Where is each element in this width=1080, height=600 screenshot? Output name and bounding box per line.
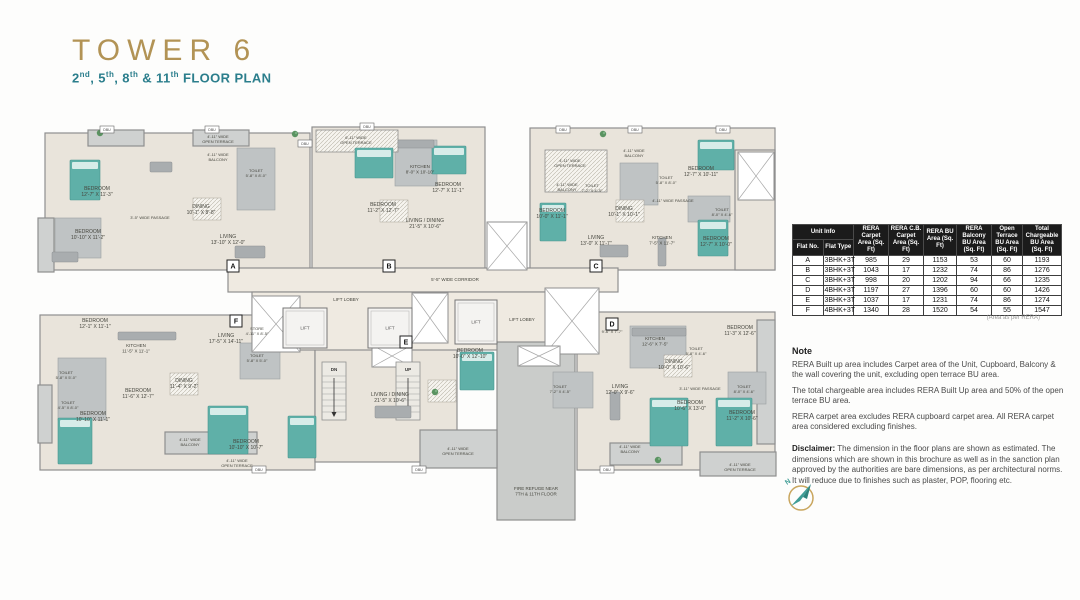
plan-bed-pillow <box>700 222 726 229</box>
plan-db-label: DBU <box>255 468 263 472</box>
plan-db-label: DBU <box>208 128 216 132</box>
disclaimer-paragraph: Disclaimer: The dimension in the floor p… <box>792 444 1064 486</box>
plan-bed-pillow <box>210 408 246 415</box>
table-cell: D <box>793 285 824 295</box>
plan-room-label: 4'-11" WIDEBALCONY <box>623 148 645 158</box>
table-cell: 998 <box>854 275 889 285</box>
plan-room-label: BEDROOM10'-0" X 12'-10" <box>453 348 488 360</box>
plan-furniture <box>150 162 172 172</box>
table-cell: 1232 <box>924 265 957 275</box>
table-cell: B <box>793 265 824 275</box>
plan-db-label: DBU <box>103 128 111 132</box>
table-cell: 17 <box>889 265 924 275</box>
table-cell: 1153 <box>924 255 957 265</box>
plan-bed-pillow <box>700 142 732 149</box>
plan-db-label: DBU <box>301 142 309 146</box>
plan-db-label: DBU <box>603 468 611 472</box>
table-cell: 28 <box>889 305 924 315</box>
table-cell: 1274 <box>1023 295 1062 305</box>
table-cell: 60 <box>992 285 1023 295</box>
plan-furniture <box>375 406 411 418</box>
plan-furniture <box>118 332 176 340</box>
plan-unit-badge-letter: C <box>593 264 598 271</box>
unit-table-header: Unit InfoRERA Carpet Area (Sq. Ft)RERA C… <box>793 225 1062 256</box>
plan-db-label: DBU <box>363 125 371 129</box>
table-column-header: RERA Balcony BU Area (Sq. Ft) <box>957 225 992 256</box>
table-column-header: Open Terrace BU Area (Sq. Ft) <box>992 225 1023 256</box>
plan-plant-leaf <box>295 132 297 134</box>
table-cell: 3BHK+3T <box>823 295 854 305</box>
table-caption: (Area as per RERA) <box>792 315 1040 321</box>
plan-plant <box>292 131 298 137</box>
note-paragraph: The total chargeable area includes RERA … <box>792 386 1064 407</box>
plan-room-label: BEDROOM10'-0" X 11'-1" <box>536 208 567 220</box>
plan-plant-leaf <box>435 390 437 392</box>
table-cell: 1231 <box>924 295 957 305</box>
table-cell: 1193 <box>1023 255 1062 265</box>
table-row: C3BHK+3T99820120294661235 <box>793 275 1062 285</box>
plan-room-label: 4'-11" WIDEBALCONY <box>619 444 641 454</box>
table-cell: 54 <box>957 305 992 315</box>
table-cell: 1340 <box>854 305 889 315</box>
table-row: A3BHK+3T98529115353601193 <box>793 255 1062 265</box>
plan-room-label: BEDROOM11'-3" X 12'-6" <box>724 325 755 337</box>
plan-tile-room <box>237 148 275 210</box>
table-cell: 17 <box>889 295 924 305</box>
table-cell: E <box>793 295 824 305</box>
table-cell: 4BHK+3T <box>823 285 854 295</box>
note-heading: Note <box>792 346 1064 356</box>
table-column-header: RERA C.B. Carpet Area (Sq. Ft) <box>889 225 924 256</box>
table-cell: 94 <box>957 275 992 285</box>
plan-room-label: BEDROOM10'-10" X 11'-2" <box>71 229 105 241</box>
note-paragraph: RERA Built up area includes Carpet area … <box>792 360 1064 381</box>
table-cell: 66 <box>992 275 1023 285</box>
table-cell: 74 <box>957 265 992 275</box>
plan-room-label: 3'-5" WIDE PASSAGE <box>130 215 170 220</box>
plan-furniture <box>398 140 434 148</box>
plan-room-label: 4'-11" WIDE PASSAGE <box>652 198 694 203</box>
plan-block <box>38 218 54 272</box>
plan-furniture <box>52 252 78 262</box>
plan-furniture <box>235 246 265 258</box>
north-compass-icon: N <box>773 468 829 524</box>
table-cell: 1276 <box>1023 265 1062 275</box>
plan-room-label: KITCHEN7'-5" X 11'-7" <box>649 235 675 246</box>
table-cell: 29 <box>889 255 924 265</box>
plan-room-label: 9'-6" X 7'-7" <box>602 329 623 334</box>
plan-room-label: 4'-11" WIDEBALCONY <box>179 437 201 447</box>
plan-room-label: BEDROOM12'-7" X 11'-3" <box>81 186 112 198</box>
table-cell: A <box>793 255 824 265</box>
plan-stair-direction: DN <box>331 367 338 372</box>
plan-room-label: BEDROOM12'-7" X 10'-11" <box>684 166 718 178</box>
table-cell: 53 <box>957 255 992 265</box>
table-cell: 1043 <box>854 265 889 275</box>
table-cell: 55 <box>992 305 1023 315</box>
table-cell: 4BHK+3T <box>823 305 854 315</box>
plan-room-label: BEDROOM11'-6" X 12'-7" <box>122 388 153 400</box>
table-cell: 1396 <box>924 285 957 295</box>
plan-bed-pillow <box>718 400 750 407</box>
table-cell: 1037 <box>854 295 889 305</box>
plan-room-label: KITCHEN12'-6" X 7'-5" <box>642 336 668 347</box>
table-cell: 60 <box>957 285 992 295</box>
notes-section: Note RERA Built up area includes Carpet … <box>792 346 1064 491</box>
plan-plant-leaf <box>658 458 660 460</box>
plan-bed-pillow <box>357 150 391 157</box>
plan-room-label: BEDROOM11'-2" X 12'-7" <box>367 202 398 214</box>
plan-block <box>88 130 144 146</box>
table-cell: 1520 <box>924 305 957 315</box>
plan-room-label: BEDROOM10'-6" X 13'-0" <box>674 400 706 412</box>
note-paragraphs: RERA Built up area includes Carpet area … <box>792 360 1064 432</box>
plan-room-label: 4'-11" WIDEBALCONY <box>207 152 229 162</box>
plan-lift-label: LIFT <box>300 326 310 331</box>
plan-plant-leaf <box>603 132 605 134</box>
table-cell: 86 <box>992 265 1023 275</box>
plan-lift-label: LIFT <box>471 320 481 325</box>
plan-db-label: DBU <box>631 128 639 132</box>
plan-bed-pillow <box>290 418 314 425</box>
plan-db-label: DBU <box>415 468 423 472</box>
brochure-page: TOWER 6 2nd, 5th, 8th & 11th FLOOR PLAN … <box>0 0 1080 600</box>
table-row: D4BHK+3T119727139660601426 <box>793 285 1062 295</box>
plan-room-label: LIVING / DINING21'-5" X 10'-6" <box>406 218 444 230</box>
plan-room-label: BEDROOM12'-7" X 10'-0" <box>700 236 732 248</box>
plan-room-label: LIFT LOBBY <box>333 297 358 302</box>
plan-room-label: FIRE REFUGE NEAR7TH & 11TH FLOOR <box>514 486 559 497</box>
disclaimer-label: Disclaimer: <box>792 444 835 453</box>
unit-table-body: A3BHK+3T98529115353601193B3BHK+3T1043171… <box>793 255 1062 315</box>
table-column-header: RERA BU Area (Sq. Ft) <box>924 225 957 256</box>
table-row: B3BHK+3T104317123274861276 <box>793 265 1062 275</box>
plan-plant <box>600 131 606 137</box>
unit-info-table: Unit InfoRERA Carpet Area (Sq. Ft)RERA C… <box>792 224 1062 316</box>
plan-unit-badge-letter: A <box>230 264 235 271</box>
plan-stair-direction: UP <box>405 367 411 372</box>
plan-plant <box>655 457 661 463</box>
table-cell: 1202 <box>924 275 957 285</box>
plan-room-label: LIVING / DINING21'-5" X 10'-6" <box>371 392 409 404</box>
compass-north-label: N <box>784 478 792 487</box>
table-cell: F <box>793 305 824 315</box>
plan-room-label: 3'-11" WIDE PASSAGE <box>679 386 721 391</box>
plan-unit-badge-letter: D <box>609 322 614 329</box>
table-column-header: RERA Carpet Area (Sq. Ft) <box>854 225 889 256</box>
plan-furniture <box>632 328 686 336</box>
note-paragraph: RERA carpet area excludes RERA cupboard … <box>792 412 1064 433</box>
plan-room-label: 5'-5" WIDE CORRIDOR <box>431 277 479 282</box>
table-cell: 27 <box>889 285 924 295</box>
plan-room-label: LIFT LOBBY <box>509 317 534 322</box>
table-column-header: Flat Type <box>823 240 854 255</box>
table-row: F4BHK+3T134028152054551547 <box>793 305 1062 315</box>
plan-room-label: BEDROOM10'-10" X 10'-7" <box>229 439 264 451</box>
plan-unit-badge-letter: B <box>386 264 391 271</box>
table-cell: 86 <box>992 295 1023 305</box>
table-cell: 985 <box>854 255 889 265</box>
table-cell: 74 <box>957 295 992 305</box>
plan-db-label: DBU <box>559 128 567 132</box>
plan-plant <box>432 389 438 395</box>
table-cell: 20 <box>889 275 924 285</box>
table-cell: 3BHK+3T <box>823 265 854 275</box>
table-cell: 3BHK+3T <box>823 275 854 285</box>
table-column-header: Total Chargeable BU Area (Sq. Ft) <box>1023 225 1062 256</box>
plan-room-label: BEDROOM11'-2" X 10'-6" <box>726 410 757 422</box>
table-cell: 1197 <box>854 285 889 295</box>
plan-room-label: BEDROOM10'-10" X 11'-1" <box>76 411 110 423</box>
table-group-header: Unit Info <box>793 225 854 240</box>
table-row: E3BHK+3T103717123174861274 <box>793 295 1062 305</box>
plan-db-label: DBU <box>719 128 727 132</box>
table-column-header: Flat No. <box>793 240 824 255</box>
table-cell: 1426 <box>1023 285 1062 295</box>
plan-room-label: BEDROOM12'-1" X 11'-1" <box>79 318 110 330</box>
table-cell: 1235 <box>1023 275 1062 285</box>
table-cell: 1547 <box>1023 305 1062 315</box>
plan-block <box>38 385 52 443</box>
plan-unit-badge-letter: E <box>404 340 409 347</box>
plan-room-label: 4'-11" WIDEBALCONY <box>556 182 578 192</box>
table-cell: 60 <box>992 255 1023 265</box>
table-cell: C <box>793 275 824 285</box>
table-cell: 3BHK+3T <box>823 255 854 265</box>
plan-bed-pillow <box>434 148 464 155</box>
plan-furniture <box>610 392 620 420</box>
plan-lift-label: LIFT <box>385 326 395 331</box>
plan-bed-pillow <box>72 162 98 169</box>
plan-room-label: BEDROOM12'-7" X 11'-1" <box>432 182 463 194</box>
plan-unit-badge-letter: F <box>234 319 239 326</box>
